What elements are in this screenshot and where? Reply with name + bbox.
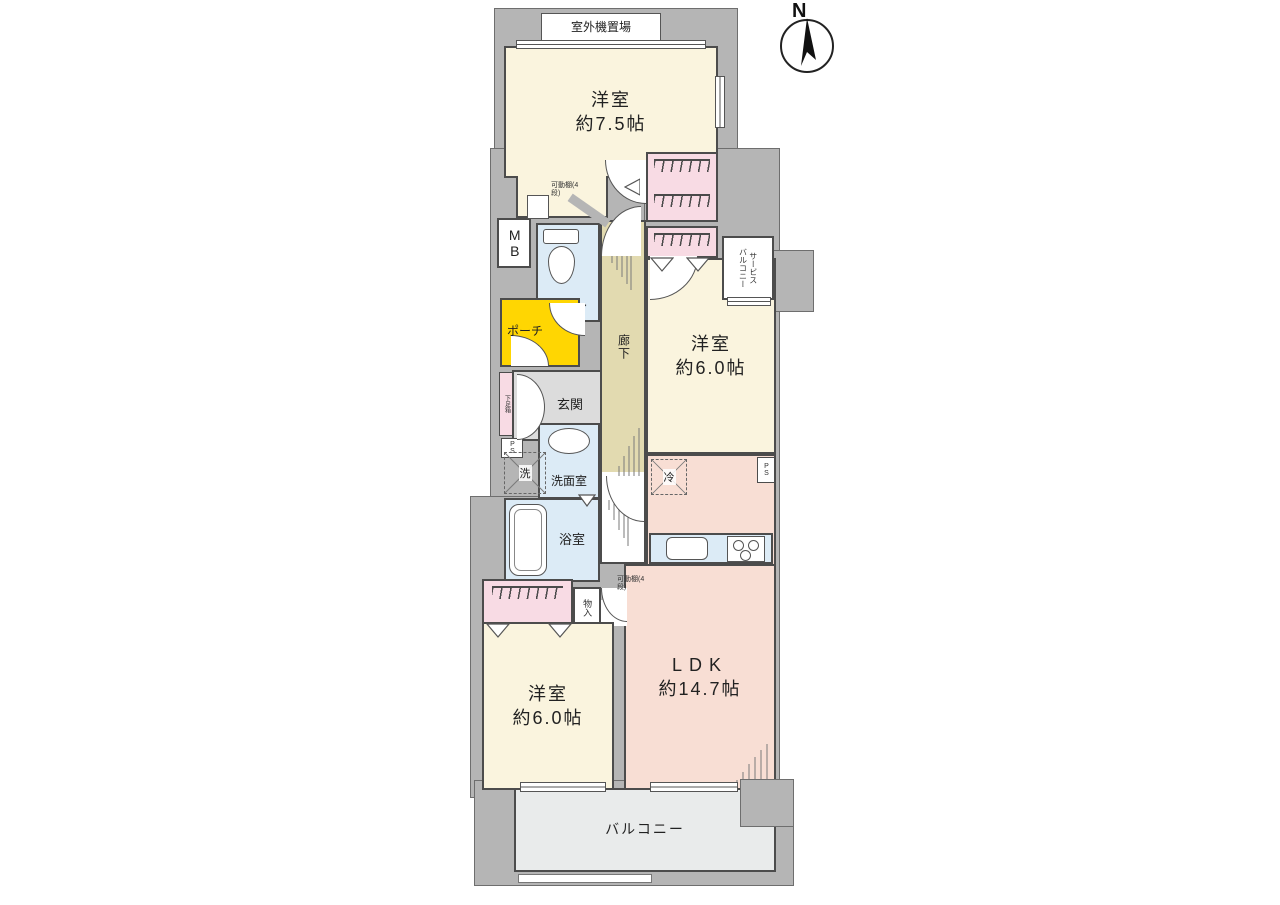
bedroom-top-size: 約7.5帖 <box>575 112 646 136</box>
bath-label: 浴室 <box>559 532 585 548</box>
balcony: バルコニー <box>514 788 776 872</box>
washer-label: 洗 <box>519 465 532 481</box>
closet-middle <box>646 226 718 258</box>
folding-door-icon <box>624 178 640 196</box>
outdoor-unit-area: 室外機置場 <box>541 13 661 41</box>
bedroom-top-name: 洋室 <box>591 88 631 112</box>
folding-door-icon <box>650 257 674 272</box>
bedroom-bottom-name: 洋室 <box>528 682 568 706</box>
balcony-rail-gap <box>518 874 652 883</box>
folding-door-icon <box>686 257 710 272</box>
sink-icon <box>548 428 590 454</box>
ldk-size: 約14.7帖 <box>658 677 741 701</box>
outdoor-unit-label: 室外機置場 <box>571 20 631 35</box>
meter-box-label: MB <box>505 227 523 259</box>
hanger-rod-icon <box>654 194 710 207</box>
window-service-balcony <box>727 297 771 306</box>
hanger-rod-icon <box>654 159 710 172</box>
closet-bottom <box>482 579 573 624</box>
compass: N <box>778 0 838 84</box>
window-balcony-right <box>650 782 738 792</box>
kitchen-sink-icon <box>666 537 708 560</box>
service-balcony: バルコニー サービス <box>722 236 774 300</box>
floor-plan: N 室外機置場 洋室 約7.5帖 可動棚(4段) MB トイレ <box>0 0 1280 905</box>
balcony-label: バルコニー <box>605 821 685 839</box>
window-bedroom-top-east <box>715 76 725 128</box>
walk-in-closet <box>646 152 718 222</box>
movable-shelf-label-ldk: 可動棚(4段) <box>617 576 651 592</box>
folding-door-icon <box>548 623 572 638</box>
pipe-space-ldk: PS <box>757 457 775 483</box>
entrance-label: 玄関 <box>557 397 583 413</box>
wall-balcony-corner <box>740 779 794 827</box>
hanger-rod-icon <box>654 233 710 246</box>
shoe-box-label: 下足箱 <box>503 395 510 413</box>
window-top <box>516 40 706 49</box>
bedroom-bottom-size: 約6.0帖 <box>512 706 583 730</box>
pipe-space-label: PS <box>762 463 770 477</box>
service-balcony-label: サービス <box>749 252 758 284</box>
bath-door-icon <box>578 494 596 507</box>
ldk-name: LDK <box>672 653 728 677</box>
storage-label: 物入 <box>582 599 592 617</box>
service-balcony-label: バルコニー <box>738 248 747 288</box>
folding-door-icon <box>486 623 510 638</box>
shoe-box: 下足箱 <box>499 372 513 436</box>
wall-right-protrusion <box>772 250 814 312</box>
washroom-label: 洗面室 <box>551 474 587 489</box>
compass-icon <box>778 0 838 84</box>
bedroom-right-size: 約6.0帖 <box>675 356 746 380</box>
movable-shelf-label-top: 可動棚(4段) <box>551 182 585 198</box>
corridor-label: 廊下 <box>616 334 631 360</box>
hanger-rod-icon <box>492 586 563 599</box>
bedroom-right-name: 洋室 <box>691 332 731 356</box>
window-balcony-left <box>520 782 606 792</box>
washer-space: 洗 <box>504 452 546 494</box>
room-bedroom-bottom: 洋室 約6.0帖 <box>482 622 614 790</box>
meter-box: MB <box>497 218 531 268</box>
toilet-tank-icon <box>543 229 579 244</box>
porch-label: ポーチ <box>507 324 543 339</box>
fridge-space: 冷 <box>651 459 687 495</box>
movable-shelf-box-top <box>527 195 549 219</box>
fridge-label: 冷 <box>663 469 676 485</box>
bathtub-icon <box>509 504 547 576</box>
stove-icon <box>727 536 765 562</box>
